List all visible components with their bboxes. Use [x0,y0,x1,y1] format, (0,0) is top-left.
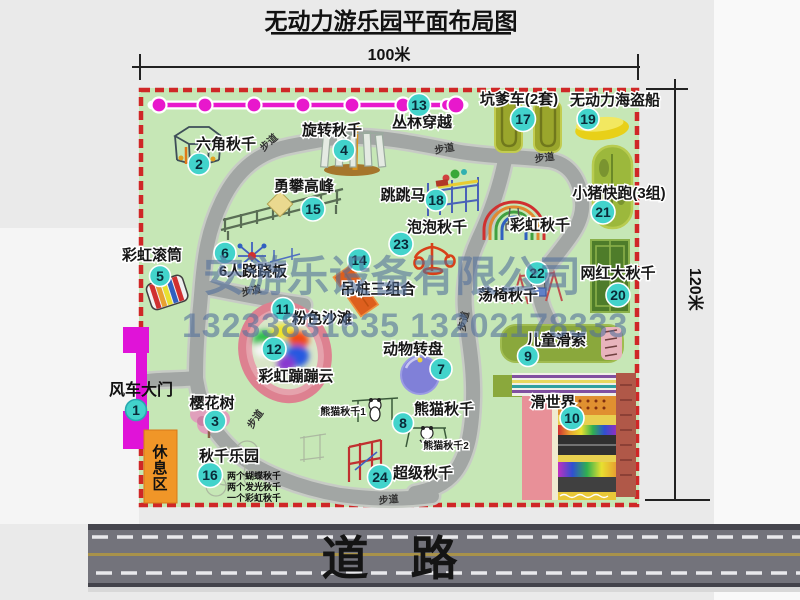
svg-text:安游乐设备有限公司: 安游乐设备有限公司 [203,253,581,300]
svg-text:13233831635 13202178333: 13233831635 13202178333 [182,307,628,345]
